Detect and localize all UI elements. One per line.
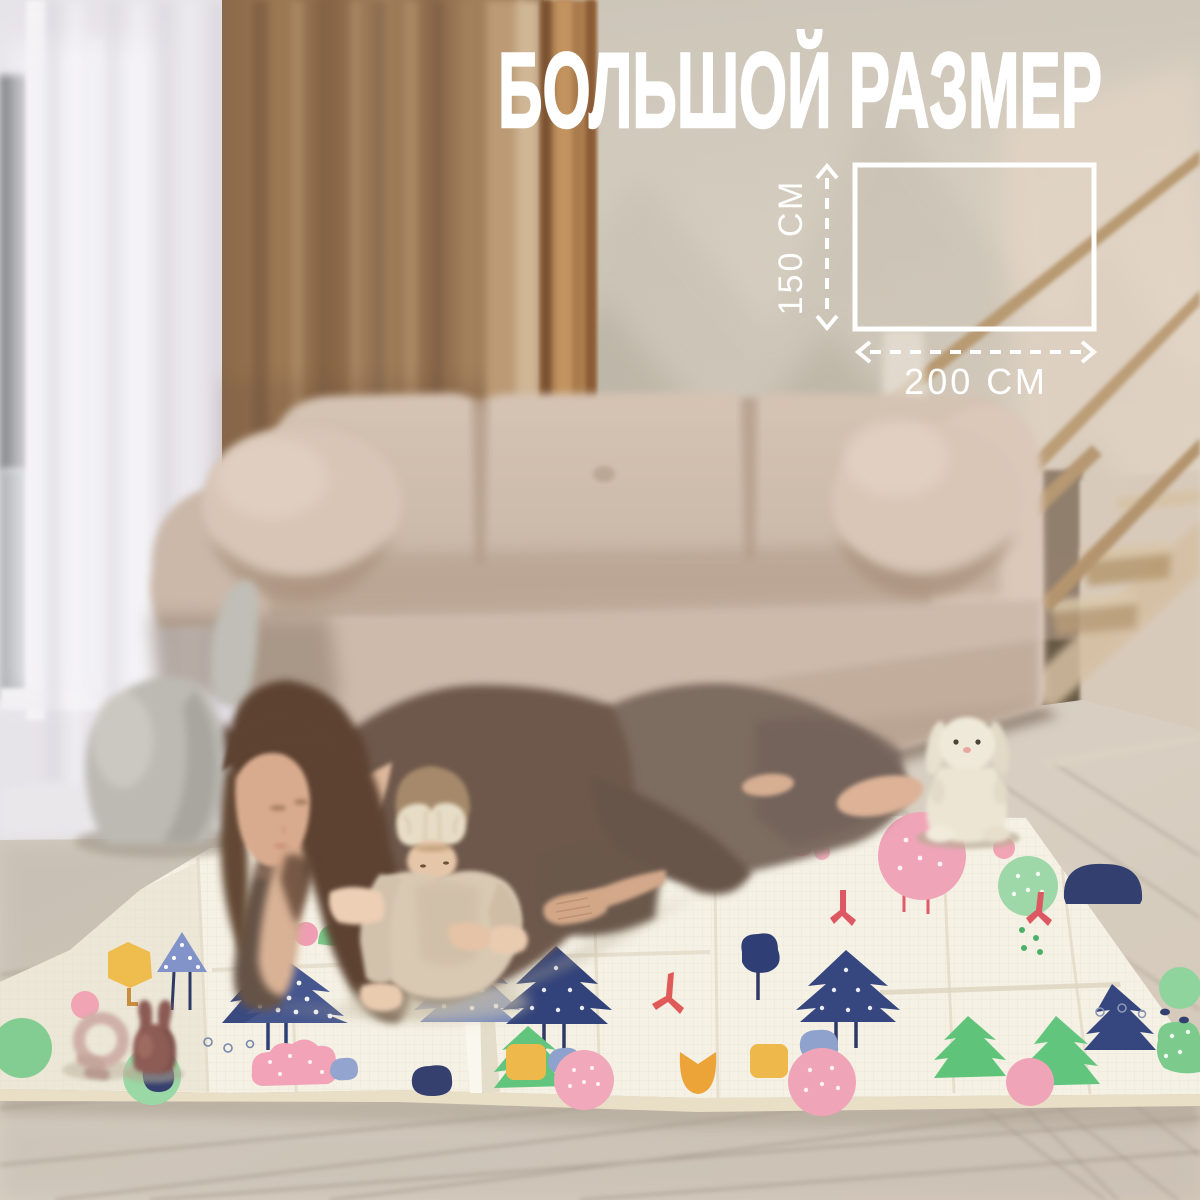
svg-text:200 СМ: 200 СМ [904,361,1048,402]
svg-text:150 СМ: 150 СМ [772,179,810,316]
svg-text:БОЛЬШОЙ РАЗМЕР: БОЛЬШОЙ РАЗМЕР [498,29,1102,150]
